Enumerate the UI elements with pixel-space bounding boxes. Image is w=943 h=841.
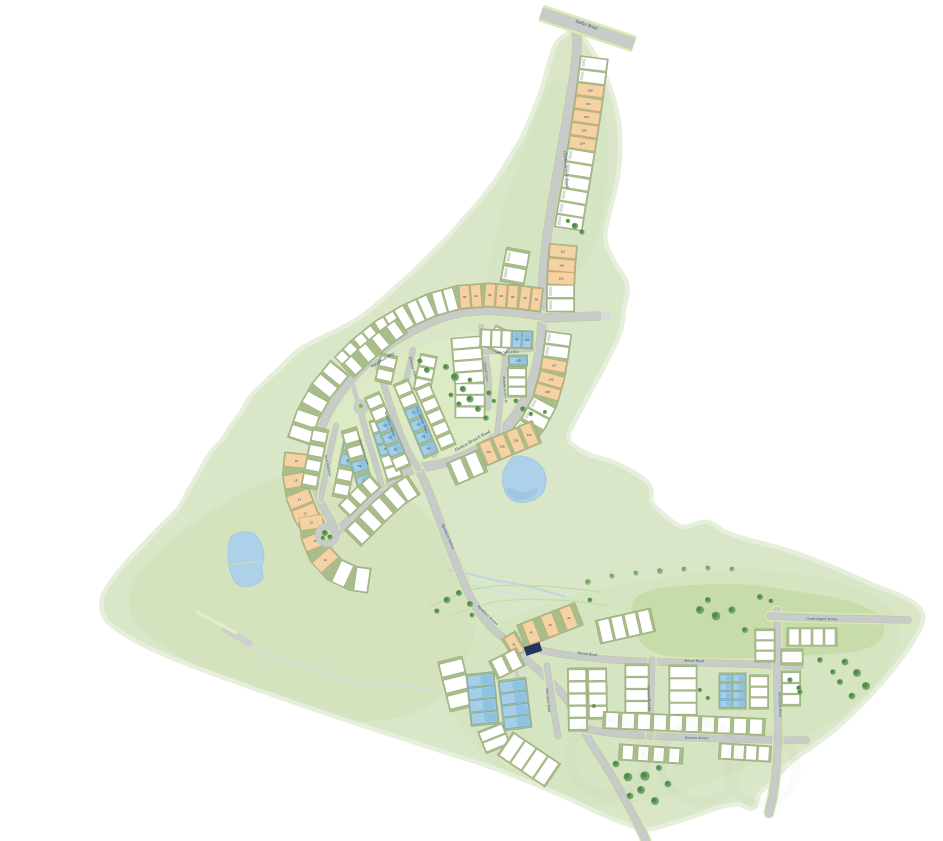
- svg-text:10: 10: [324, 558, 328, 562]
- svg-text:108: 108: [500, 445, 505, 449]
- svg-text:63: 63: [422, 435, 426, 439]
- svg-text:109: 109: [513, 439, 518, 443]
- svg-text:Sada Spit Le Run: Sada Spit Le Run: [495, 350, 519, 355]
- svg-text:153: 153: [582, 128, 587, 132]
- svg-text:94: 94: [511, 295, 515, 299]
- svg-text:99: 99: [515, 338, 519, 342]
- svg-text:110: 110: [527, 433, 532, 437]
- svg-text:15: 15: [294, 479, 298, 483]
- svg-text:13: 13: [303, 511, 307, 515]
- svg-text:113: 113: [560, 250, 565, 254]
- svg-text:91: 91: [474, 294, 478, 298]
- svg-text:44: 44: [567, 616, 571, 620]
- svg-text:59: 59: [389, 436, 393, 440]
- svg-text:154: 154: [580, 142, 585, 146]
- svg-text:53: 53: [358, 464, 362, 468]
- svg-text:152: 152: [584, 115, 589, 119]
- svg-text:100: 100: [524, 338, 529, 342]
- svg-text:60: 60: [394, 448, 398, 452]
- svg-text:Western Avenue: Western Avenue: [685, 736, 709, 740]
- svg-text:42: 42: [530, 630, 534, 634]
- svg-text:147: 147: [551, 363, 556, 367]
- svg-text:107: 107: [486, 450, 491, 454]
- svg-text:Undeveloped Avenue: Undeveloped Avenue: [806, 617, 838, 622]
- svg-text:151: 151: [586, 102, 591, 106]
- svg-text:140: 140: [515, 359, 520, 363]
- svg-text:64: 64: [427, 447, 431, 451]
- svg-text:90: 90: [463, 295, 467, 299]
- svg-text:95: 95: [523, 296, 527, 300]
- svg-text:146: 146: [549, 378, 554, 382]
- svg-text:12: 12: [310, 521, 314, 525]
- svg-text:Bristol Road: Bristol Road: [684, 659, 703, 663]
- svg-text:16: 16: [295, 459, 299, 463]
- svg-text:114: 114: [559, 263, 564, 267]
- svg-text:145: 145: [545, 390, 550, 394]
- svg-text:150: 150: [588, 88, 593, 92]
- svg-text:92: 92: [488, 293, 492, 297]
- svg-text:43: 43: [548, 623, 552, 627]
- svg-text:14: 14: [298, 497, 302, 501]
- svg-text:61: 61: [412, 411, 416, 415]
- svg-text:58: 58: [383, 424, 387, 428]
- svg-text:41: 41: [512, 643, 516, 647]
- svg-text:93: 93: [500, 294, 504, 298]
- svg-text:96: 96: [535, 298, 539, 302]
- svg-text:115: 115: [559, 276, 564, 280]
- svg-text:62: 62: [417, 423, 421, 427]
